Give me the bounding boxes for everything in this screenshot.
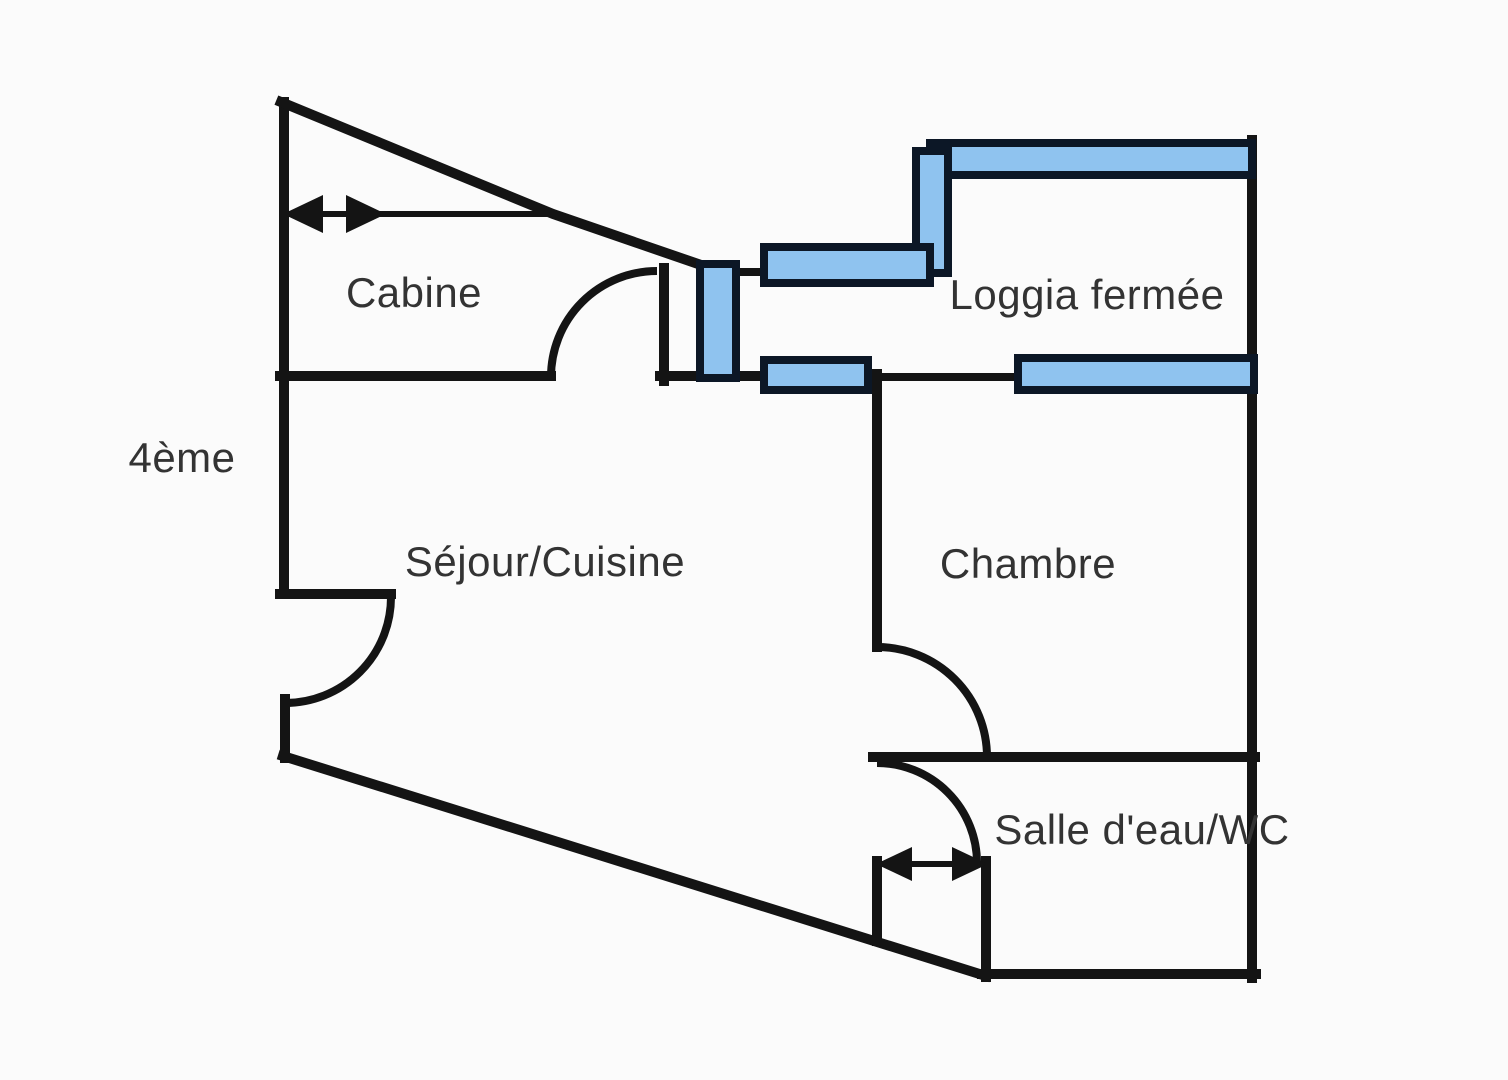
floor-plan-drawing xyxy=(0,0,1508,1080)
room-label-sejour-cuisine: Séjour/Cuisine xyxy=(405,539,685,585)
windows xyxy=(700,143,1254,390)
window-loggia-top xyxy=(930,143,1252,175)
door-arc-cabine xyxy=(551,271,657,377)
door-width-arrow xyxy=(876,847,988,881)
floor-plan-canvas: Cabine Loggia fermée 4ème Séjour/Cuisine… xyxy=(0,0,1508,1080)
door-arc-sejour-entry xyxy=(285,597,391,703)
door-arc-salle-eau xyxy=(877,763,977,863)
floor-label: 4ème xyxy=(128,435,235,481)
room-label-chambre: Chambre xyxy=(940,541,1116,587)
room-label-loggia-fermee: Loggia fermée xyxy=(949,272,1224,318)
arrowhead-right-icon xyxy=(346,195,386,233)
room-label-salle-eau-wc: Salle d'eau/WC xyxy=(994,807,1289,853)
wall-top-diagonal xyxy=(281,102,704,266)
window-corridor-upper xyxy=(764,247,930,283)
door-arc-chambre xyxy=(877,647,987,757)
window-band-right xyxy=(1018,358,1254,390)
room-label-cabine: Cabine xyxy=(346,270,482,316)
window-corridor-vertical xyxy=(700,264,736,378)
window-band-left xyxy=(764,360,868,390)
